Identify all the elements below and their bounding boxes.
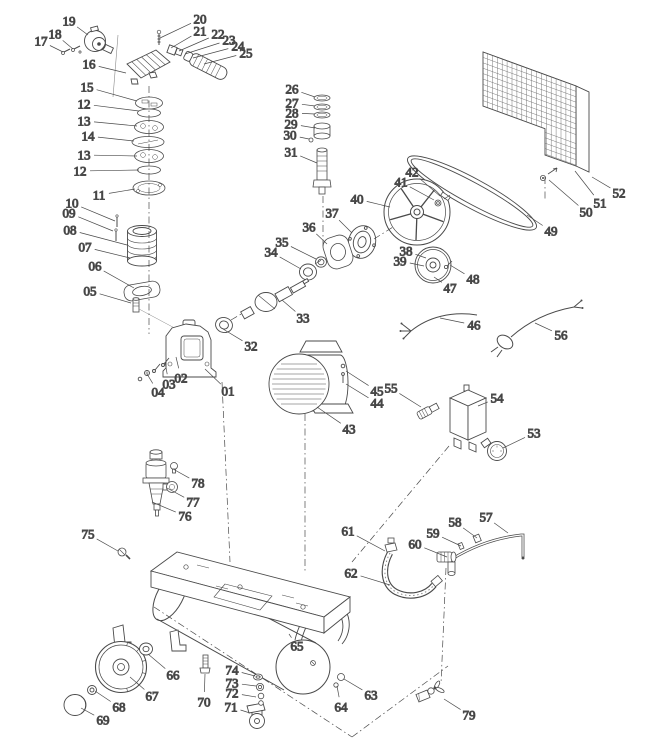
part-label-74: 74 [226, 663, 240, 678]
part-label-70: 70 [198, 695, 211, 710]
part-label-60: 60 [409, 537, 422, 552]
leader-line-61 [357, 536, 385, 551]
leader-line-48 [450, 265, 465, 274]
part-label-51: 51 [594, 196, 607, 211]
part-label-62: 62 [345, 566, 358, 581]
leader-line-35 [291, 247, 316, 260]
part-label-68: 68 [113, 700, 126, 715]
leader-line-52 [592, 177, 610, 188]
part-label-79: 79 [463, 708, 476, 723]
part-label-35: 35 [276, 235, 289, 250]
part-label-26: 26 [286, 82, 300, 97]
part-label-37: 37 [326, 206, 340, 221]
leader-line-50 [549, 180, 578, 206]
axle-washer [140, 643, 153, 655]
leader-line-78 [173, 469, 189, 478]
part-label-73: 73 [226, 676, 239, 691]
leader-line-65 [289, 634, 292, 638]
caster-fasteners [254, 674, 264, 705]
part-label-33: 33 [297, 311, 310, 326]
leader-line-30 [300, 137, 309, 139]
part-label-13: 13 [78, 114, 91, 129]
part-label-45: 45 [371, 384, 384, 399]
leader-line-20 [160, 23, 191, 38]
part-label-02: 02 [175, 371, 188, 386]
exploded-parts-diagram: 0102030405060708091011121314131215161718… [0, 0, 649, 755]
part-label-75: 75 [82, 527, 95, 542]
bearing-ring [316, 257, 327, 267]
leader-line-70 [204, 674, 205, 692]
part-label-76: 76 [179, 509, 193, 524]
leader-line-63 [344, 679, 362, 690]
part-label-19: 19 [63, 14, 76, 29]
leader-line-33 [282, 300, 295, 312]
part-label-61: 61 [342, 524, 355, 539]
part-label-16: 16 [83, 57, 97, 72]
check-valve-stack [309, 95, 331, 194]
leader-line-12 [94, 105, 139, 111]
leader-line-51 [575, 171, 594, 195]
hubcap [64, 695, 86, 716]
caster-drawing [247, 703, 265, 729]
platform-screw [118, 548, 130, 559]
leader-line-58 [463, 528, 477, 538]
part-label-12: 12 [74, 164, 87, 179]
air-filter-drawing [85, 26, 114, 53]
part-label-64: 64 [335, 700, 349, 715]
leader-line-13 [94, 122, 137, 126]
part-label-18: 18 [49, 27, 62, 42]
leader-line-34 [280, 257, 301, 269]
part-label-47: 47 [444, 281, 458, 296]
leader-line-10 [81, 207, 115, 221]
part-label-15: 15 [81, 80, 94, 95]
leader-line-32 [223, 329, 243, 341]
leader-line-28 [302, 113, 315, 114]
part-label-07: 07 [79, 240, 93, 255]
leader-line-36 [316, 234, 327, 244]
base-gasket [123, 280, 161, 302]
part-label-58: 58 [449, 515, 462, 530]
muffler-drawing [167, 45, 229, 82]
leader-line-21 [171, 36, 191, 48]
part-label-13: 13 [78, 148, 91, 163]
part-label-71: 71 [225, 700, 238, 715]
leader-line-27 [302, 104, 315, 106]
leader-line-29 [301, 126, 315, 128]
leader-line-75 [97, 539, 118, 551]
valve-plate-stack [132, 97, 165, 195]
part-label-78: 78 [192, 476, 205, 491]
leader-line-19 [77, 27, 88, 35]
part-label-77: 77 [187, 495, 201, 510]
drain-clip [334, 674, 345, 688]
leader-line-07 [95, 249, 130, 258]
part-label-53: 53 [528, 426, 541, 441]
crankcase-drawing [163, 320, 216, 377]
leader-line-68 [95, 691, 111, 702]
plug-cord [491, 300, 584, 358]
part-label-06: 06 [89, 259, 103, 274]
part-label-01: 01 [222, 384, 235, 399]
leader-line-46 [440, 318, 464, 323]
leader-line-18 [63, 40, 73, 49]
drain-valve-drawing [416, 680, 445, 702]
axle-bolt [200, 655, 210, 673]
unloader-fitting [416, 402, 439, 419]
part-label-10: 10 [66, 196, 79, 211]
leader-line-73 [242, 684, 256, 686]
oil-seal [214, 316, 234, 335]
leader-line-17 [50, 46, 63, 53]
cylinder-head-drawing [127, 50, 170, 84]
part-label-11: 11 [93, 188, 106, 203]
part-label-17: 17 [35, 34, 49, 49]
leader-line-12 [90, 170, 139, 171]
leader-line-26 [301, 92, 315, 97]
part-label-12: 12 [78, 97, 91, 112]
leader-line-44 [346, 384, 369, 398]
part-label-52: 52 [613, 186, 626, 201]
leader-line-11 [109, 189, 135, 193]
leader-line-22 [179, 38, 209, 51]
part-label-59: 59 [427, 526, 440, 541]
leader-line-37 [339, 220, 352, 233]
platform-drawing [151, 552, 350, 633]
part-label-65: 65 [291, 639, 304, 654]
pressure-gauge-drawing [481, 438, 506, 460]
belt-guard-grille [483, 52, 589, 172]
leader-line-64 [337, 686, 339, 697]
part-label-46: 46 [468, 318, 482, 333]
part-label-40: 40 [351, 192, 364, 207]
leader-line-53 [503, 437, 525, 448]
part-label-39: 39 [394, 254, 407, 269]
part-label-56: 56 [555, 328, 569, 343]
part-label-08: 08 [64, 223, 77, 238]
diagram-canvas: 0102030405060708091011121314131215161718… [0, 0, 649, 755]
leader-line-49 [527, 215, 543, 226]
leader-line-09 [78, 217, 113, 231]
leader-line-72 [242, 695, 256, 697]
part-label-50: 50 [580, 205, 593, 220]
part-label-30: 30 [284, 128, 297, 143]
pressure-switch-drawing [450, 385, 486, 452]
leader-line-79 [444, 699, 461, 710]
leader-line-14 [98, 137, 134, 141]
cylinder-drawing [128, 226, 157, 267]
motor-drawing [269, 341, 353, 414]
regulator-drawing [143, 450, 178, 516]
part-label-63: 63 [365, 688, 378, 703]
leader-line-15 [97, 90, 137, 101]
part-label-49: 49 [545, 224, 558, 239]
part-label-54: 54 [491, 391, 505, 406]
part-label-21: 21 [194, 24, 207, 39]
part-label-25: 25 [240, 46, 253, 61]
leader-line-16 [99, 66, 126, 73]
hub-washer [88, 686, 97, 695]
bearing [300, 264, 317, 280]
part-label-43: 43 [343, 422, 356, 437]
part-label-57: 57 [480, 510, 494, 525]
part-label-04: 04 [152, 385, 166, 400]
leader-line-66 [148, 654, 165, 669]
leader-line-57 [494, 523, 508, 533]
leader-line-45 [346, 371, 369, 386]
part-label-69: 69 [97, 713, 110, 728]
part-label-42: 42 [406, 165, 419, 180]
part-label-48: 48 [467, 272, 480, 287]
part-label-66: 66 [167, 668, 181, 683]
leader-line-59 [442, 537, 461, 546]
power-cord [400, 314, 478, 340]
leader-line-31 [300, 156, 317, 163]
leader-line-13 [94, 155, 137, 156]
part-label-14: 14 [82, 129, 96, 144]
part-label-32: 32 [245, 339, 258, 354]
valve-pins [115, 215, 118, 241]
leader-line-06 [104, 271, 134, 288]
part-label-05: 05 [84, 284, 97, 299]
grille-bolt [540, 168, 557, 181]
leader-line-04 [147, 374, 153, 384]
mount-plate-edge [113, 35, 118, 97]
part-label-31: 31 [285, 145, 298, 160]
leader-line-55 [399, 393, 421, 407]
part-label-67: 67 [146, 689, 160, 704]
part-label-36: 36 [303, 220, 317, 235]
part-label-55: 55 [385, 381, 398, 396]
leader-line-56 [535, 323, 552, 331]
